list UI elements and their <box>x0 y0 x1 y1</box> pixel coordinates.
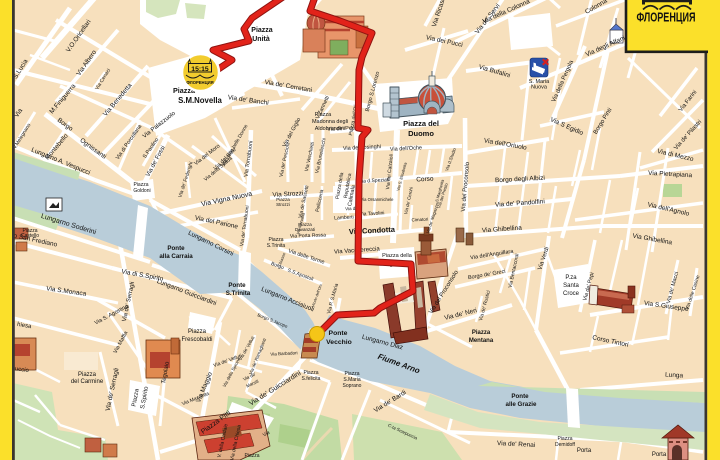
svg-text:Ponte: Ponte <box>228 282 246 289</box>
svg-text:Strozzi: Strozzi <box>276 202 290 207</box>
svg-text:Mentana: Mentana <box>469 338 494 344</box>
svg-text:Piazza: Piazza <box>251 27 273 34</box>
svg-text:S.M.Novella: S.M.Novella <box>178 96 222 105</box>
svg-text:Lunga: Lunga <box>665 372 684 380</box>
svg-text:Piazza: Piazza <box>472 330 491 336</box>
svg-text:S.Trinita: S.Trinita <box>226 290 251 297</box>
svg-text:S.Trinita: S.Trinita <box>267 243 286 249</box>
svg-text:S.felicita: S.felicita <box>302 376 321 382</box>
svg-text:15:15: 15:15 <box>191 66 209 73</box>
svg-text:Duomo: Duomo <box>408 129 434 138</box>
svg-text:Piazza della: Piazza della <box>382 253 413 259</box>
svg-text:Unità: Unità <box>252 36 270 43</box>
svg-text:Porta: Porta <box>577 448 592 454</box>
svg-text:Lamberti: Lamberti <box>334 214 354 221</box>
svg-text:del Carmine: del Carmine <box>71 379 104 385</box>
svg-text:Via Orsanmichele: Via Orsanmichele <box>361 197 395 202</box>
svg-text:alla Carraia: alla Carraia <box>159 253 193 260</box>
svg-text:Soprano: Soprano <box>343 383 362 389</box>
svg-text:Piazza: Piazza <box>244 453 259 459</box>
svg-text:Santa: Santa <box>563 283 579 289</box>
svg-text:Piazza del: Piazza del <box>403 119 439 128</box>
svg-text:Porta: Porta <box>652 452 667 458</box>
svg-text:ФЛОРЕНЦИЯ: ФЛОРЕНЦИЯ <box>186 80 213 85</box>
svg-text:Demidoff: Demidoff <box>555 442 576 448</box>
svg-text:Piazza: Piazza <box>78 372 97 378</box>
svg-text:Ponte: Ponte <box>167 245 185 252</box>
svg-text:Ponte: Ponte <box>511 393 529 400</box>
svg-text:Vecchio: Vecchio <box>326 339 352 346</box>
svg-text:Goldoni: Goldoni <box>133 188 150 194</box>
svg-text:Via Porta Rossa: Via Porta Rossa <box>290 232 326 239</box>
svg-text:Corso: Corso <box>416 176 434 184</box>
svg-text:Cimatori: Cimatori <box>411 217 428 223</box>
svg-text:Ponte: Ponte <box>329 330 348 337</box>
svg-text:Croce: Croce <box>563 291 580 297</box>
svg-text:P.za: P.za <box>565 275 577 281</box>
svg-text:Madonna degli: Madonna degli <box>312 119 348 125</box>
svg-text:Nuova: Nuova <box>531 85 548 91</box>
svg-text:Piazza: Piazza <box>188 329 207 335</box>
svg-text:Frescobaldi: Frescobaldi <box>181 337 212 343</box>
svg-text:alle Grazie: alle Grazie <box>506 401 538 408</box>
svg-text:ФЛОРЕНЦИЯ: ФЛОРЕНЦИЯ <box>637 10 696 25</box>
